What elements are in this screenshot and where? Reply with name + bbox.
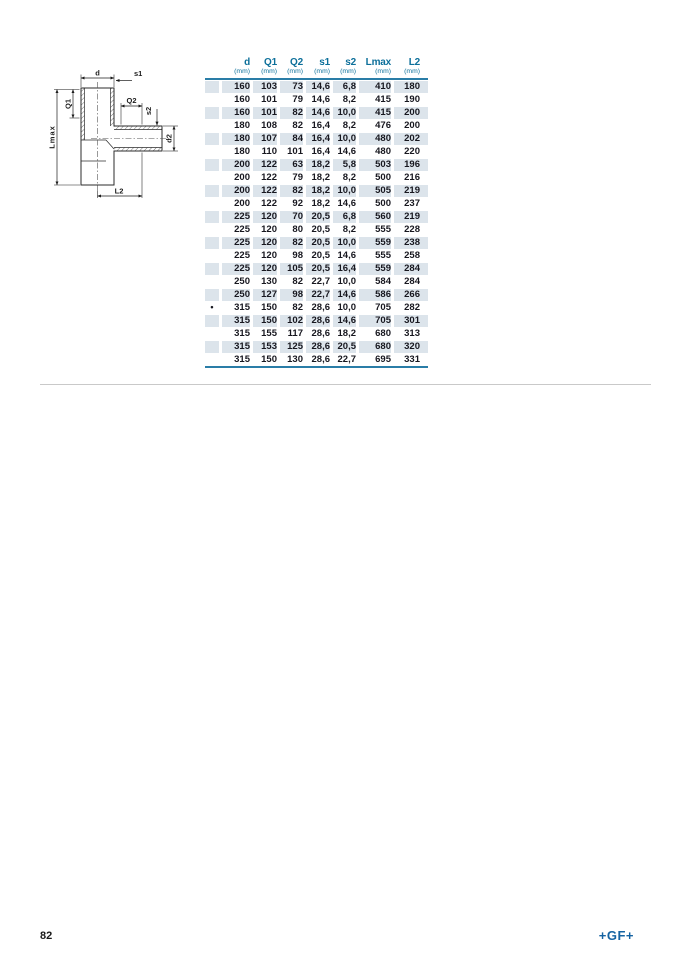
table-cell: 180 bbox=[222, 133, 250, 145]
table-cell: 238 bbox=[394, 237, 428, 249]
table-row: 2001226318,25,8503196 bbox=[205, 158, 428, 171]
table-cell: 284 bbox=[394, 263, 428, 275]
table-cell: 180 bbox=[222, 146, 250, 158]
table-cell: 153 bbox=[253, 341, 277, 353]
dim-label-q2: Q2 bbox=[126, 96, 136, 105]
table-cell: 82 bbox=[280, 107, 303, 119]
dim-label-s1: s1 bbox=[134, 69, 142, 78]
column-header-label: L2 bbox=[394, 58, 420, 68]
table-cell: 225 bbox=[222, 211, 250, 223]
table-cell: 120 bbox=[253, 263, 277, 275]
table-cell: 315 bbox=[222, 341, 250, 353]
table-cell: 92 bbox=[280, 198, 303, 210]
table-cell: 20,5 bbox=[306, 211, 330, 223]
table-cell: 10,0 bbox=[333, 302, 356, 314]
table-cell: 14,6 bbox=[333, 250, 356, 262]
table-cell: 196 bbox=[394, 159, 428, 171]
table-cell: 125 bbox=[280, 341, 303, 353]
table-cell: 225 bbox=[222, 263, 250, 275]
table-cell: 559 bbox=[359, 237, 391, 249]
column-header-label: Lmax bbox=[359, 58, 391, 68]
table-cell: 216 bbox=[394, 172, 428, 184]
table-cell: 505 bbox=[359, 185, 391, 197]
table-cell: 331 bbox=[394, 354, 428, 366]
table-cell: 320 bbox=[394, 341, 428, 353]
table-cell: 200 bbox=[222, 198, 250, 210]
table-cell: 14,6 bbox=[306, 94, 330, 106]
table-cell: 284 bbox=[394, 276, 428, 288]
table-cell: 503 bbox=[359, 159, 391, 171]
dim-label-q1: Q1 bbox=[64, 99, 73, 109]
row-footnote-marker bbox=[205, 328, 219, 340]
table-row: 2501308222,710,0584284 bbox=[205, 275, 428, 288]
column-header-unit: (mm) bbox=[253, 69, 277, 78]
column-header: s1(mm) bbox=[306, 58, 330, 78]
table-cell: 315 bbox=[222, 328, 250, 340]
table-cell: 82 bbox=[280, 120, 303, 132]
table-cell: 22,7 bbox=[306, 276, 330, 288]
column-header-label: Q2 bbox=[280, 58, 303, 68]
table-cell: 14,6 bbox=[333, 146, 356, 158]
tee-fitting-outline bbox=[81, 88, 162, 185]
table-cell: 10,0 bbox=[333, 237, 356, 249]
table-row: 2001228218,210,0505219 bbox=[205, 184, 428, 197]
table-cell: 160 bbox=[222, 107, 250, 119]
row-footnote-marker bbox=[205, 224, 219, 236]
table-row: 2251207020,56,8560219 bbox=[205, 210, 428, 223]
table-cell: 14,6 bbox=[306, 81, 330, 93]
table-cell: 120 bbox=[253, 211, 277, 223]
table-row: 2001229218,214,6500237 bbox=[205, 197, 428, 210]
table-cell: 80 bbox=[280, 224, 303, 236]
table-cell: 130 bbox=[253, 276, 277, 288]
table-cell: 84 bbox=[280, 133, 303, 145]
table-cell: 584 bbox=[359, 276, 391, 288]
table-cell: 220 bbox=[394, 146, 428, 158]
table-cell: 8,2 bbox=[333, 120, 356, 132]
table-cell: 160 bbox=[222, 81, 250, 93]
table-cell: 8,2 bbox=[333, 172, 356, 184]
column-header: Lmax(mm) bbox=[359, 58, 391, 78]
table-cell: 82 bbox=[280, 185, 303, 197]
table-cell: 200 bbox=[222, 172, 250, 184]
table-cell: 225 bbox=[222, 237, 250, 249]
column-header-unit: (mm) bbox=[333, 69, 356, 78]
table-cell: 559 bbox=[359, 263, 391, 275]
table-cell: 476 bbox=[359, 120, 391, 132]
table-cell: 219 bbox=[394, 211, 428, 223]
table-cell: 28,6 bbox=[306, 328, 330, 340]
table-cell: 28,6 bbox=[306, 354, 330, 366]
row-footnote-marker: • bbox=[205, 302, 219, 314]
table-body: 1601037314,66,84101801601017914,68,24151… bbox=[205, 80, 428, 368]
table-cell: 102 bbox=[280, 315, 303, 327]
table-cell: 315 bbox=[222, 315, 250, 327]
table-cell: 500 bbox=[359, 198, 391, 210]
table-cell: 20,5 bbox=[306, 237, 330, 249]
table-cell: 150 bbox=[253, 315, 277, 327]
table-cell: 225 bbox=[222, 224, 250, 236]
row-footnote-marker bbox=[205, 185, 219, 197]
table-cell: 315 bbox=[222, 354, 250, 366]
row-footnote-marker bbox=[205, 81, 219, 93]
table-cell: 10,0 bbox=[333, 107, 356, 119]
table-cell: 110 bbox=[253, 146, 277, 158]
row-footnote-marker bbox=[205, 315, 219, 327]
table-cell: 22,7 bbox=[333, 354, 356, 366]
table-cell: 18,2 bbox=[333, 328, 356, 340]
row-footnote-marker bbox=[205, 120, 219, 132]
column-header-unit: (mm) bbox=[222, 69, 250, 78]
table-cell: 586 bbox=[359, 289, 391, 301]
table-cell: 5,8 bbox=[333, 159, 356, 171]
table-cell: 10,0 bbox=[333, 185, 356, 197]
column-header-unit: (mm) bbox=[306, 69, 330, 78]
table-cell: 108 bbox=[253, 120, 277, 132]
table-cell: 415 bbox=[359, 107, 391, 119]
table-cell: 14,6 bbox=[333, 289, 356, 301]
table-cell: 282 bbox=[394, 302, 428, 314]
table-cell: 63 bbox=[280, 159, 303, 171]
table-cell: 705 bbox=[359, 302, 391, 314]
column-header-label: Q1 bbox=[253, 58, 277, 68]
table-cell: 16,4 bbox=[306, 133, 330, 145]
table-cell: 155 bbox=[253, 328, 277, 340]
table-cell: 705 bbox=[359, 315, 391, 327]
table-cell: 28,6 bbox=[306, 302, 330, 314]
table-cell: 101 bbox=[253, 94, 277, 106]
table-cell: 200 bbox=[222, 159, 250, 171]
column-header-unit: (mm) bbox=[359, 69, 391, 78]
table-cell: 70 bbox=[280, 211, 303, 223]
table-cell: 107 bbox=[253, 133, 277, 145]
table-cell: 313 bbox=[394, 328, 428, 340]
table-cell: 202 bbox=[394, 133, 428, 145]
column-header: L2(mm) bbox=[394, 58, 428, 78]
table-cell: 6,8 bbox=[333, 211, 356, 223]
table-cell: 480 bbox=[359, 133, 391, 145]
table-cell: 190 bbox=[394, 94, 428, 106]
table-cell: 18,2 bbox=[306, 159, 330, 171]
column-header-label: s1 bbox=[306, 58, 330, 68]
dimension-lines bbox=[57, 78, 174, 196]
table-cell: 20,5 bbox=[306, 224, 330, 236]
table-cell: 14,6 bbox=[333, 198, 356, 210]
table-cell: 180 bbox=[394, 81, 428, 93]
table-cell: 120 bbox=[253, 237, 277, 249]
page-number: 82 bbox=[40, 930, 52, 942]
table-cell: 79 bbox=[280, 94, 303, 106]
table-cell: 103 bbox=[253, 81, 277, 93]
dimension-table: d(mm)Q1(mm)Q2(mm)s1(mm)s2(mm)Lmax(mm)L2(… bbox=[205, 53, 428, 368]
table-cell: 555 bbox=[359, 250, 391, 262]
table-cell: 22,7 bbox=[306, 289, 330, 301]
table-row: 1801088216,48,2476200 bbox=[205, 119, 428, 132]
row-footnote-marker bbox=[205, 289, 219, 301]
table-cell: 73 bbox=[280, 81, 303, 93]
table-cell: 98 bbox=[280, 250, 303, 262]
page-divider-line bbox=[40, 384, 651, 385]
table-cell: 16,4 bbox=[306, 146, 330, 158]
row-footnote-marker bbox=[205, 263, 219, 275]
table-cell: 20,5 bbox=[333, 341, 356, 353]
dim-label-d: d bbox=[95, 69, 100, 78]
table-cell: 18,2 bbox=[306, 198, 330, 210]
table-cell: 82 bbox=[280, 237, 303, 249]
table-cell: 120 bbox=[253, 224, 277, 236]
table-cell: 101 bbox=[253, 107, 277, 119]
table-cell: 200 bbox=[394, 107, 428, 119]
row-footnote-marker bbox=[205, 354, 219, 366]
table-cell: 415 bbox=[359, 94, 391, 106]
table-row: 2251208220,510,0559238 bbox=[205, 236, 428, 249]
table-cell: 14,6 bbox=[306, 107, 330, 119]
table-cell: 10,0 bbox=[333, 133, 356, 145]
table-cell: 225 bbox=[222, 250, 250, 262]
table-cell: 120 bbox=[253, 250, 277, 262]
table-row: 22512010520,516,4559284 bbox=[205, 262, 428, 275]
column-header: s2(mm) bbox=[333, 58, 356, 78]
table-cell: 127 bbox=[253, 289, 277, 301]
table-cell: 117 bbox=[280, 328, 303, 340]
table-cell: 500 bbox=[359, 172, 391, 184]
table-row: 2001227918,28,2500216 bbox=[205, 171, 428, 184]
extension-lines bbox=[54, 75, 178, 199]
table-cell: 28,6 bbox=[306, 315, 330, 327]
column-header-unit: (mm) bbox=[394, 69, 420, 78]
technical-drawing: d s1 Q1 Lmax Q2 s2 d2 L2 bbox=[44, 56, 194, 206]
table-cell: 14,6 bbox=[333, 315, 356, 327]
table-row: 31515312528,620,5680320 bbox=[205, 340, 428, 353]
table-cell: 315 bbox=[222, 302, 250, 314]
table-cell: 82 bbox=[280, 276, 303, 288]
table-row: 2251208020,58,2555228 bbox=[205, 223, 428, 236]
table-cell: 695 bbox=[359, 354, 391, 366]
table-cell: 250 bbox=[222, 276, 250, 288]
table-cell: 301 bbox=[394, 315, 428, 327]
column-header-label: d bbox=[222, 58, 250, 68]
table-cell: 8,2 bbox=[333, 224, 356, 236]
table-cell: 237 bbox=[394, 198, 428, 210]
row-footnote-marker bbox=[205, 107, 219, 119]
column-header: d(mm) bbox=[222, 58, 250, 78]
table-row: 31515010228,614,6705301 bbox=[205, 314, 428, 327]
row-footnote-marker bbox=[205, 341, 219, 353]
table-cell: 410 bbox=[359, 81, 391, 93]
dim-label-lmax: Lmax bbox=[48, 125, 57, 149]
row-footnote-marker bbox=[205, 94, 219, 106]
table-cell: 219 bbox=[394, 185, 428, 197]
table-cell: 680 bbox=[359, 328, 391, 340]
column-header: Q2(mm) bbox=[280, 58, 303, 78]
row-footnote-marker bbox=[205, 250, 219, 262]
table-cell: 18,2 bbox=[306, 172, 330, 184]
table-cell: 82 bbox=[280, 302, 303, 314]
table-cell: 105 bbox=[280, 263, 303, 275]
row-footnote-marker bbox=[205, 172, 219, 184]
table-row: 2251209820,514,6555258 bbox=[205, 249, 428, 262]
table-cell: 122 bbox=[253, 159, 277, 171]
table-cell: 150 bbox=[253, 354, 277, 366]
row-footnote-marker bbox=[205, 159, 219, 171]
table-cell: 680 bbox=[359, 341, 391, 353]
table-cell: 160 bbox=[222, 94, 250, 106]
table-cell: 6,8 bbox=[333, 81, 356, 93]
table-cell: 200 bbox=[222, 185, 250, 197]
row-footnote-marker bbox=[205, 146, 219, 158]
table-row: 31515511728,618,2680313 bbox=[205, 327, 428, 340]
table-cell: 200 bbox=[394, 120, 428, 132]
row-footnote-marker bbox=[205, 198, 219, 210]
table-cell: 560 bbox=[359, 211, 391, 223]
table-row: 1801078416,410,0480202 bbox=[205, 132, 428, 145]
table-cell: 16,4 bbox=[306, 120, 330, 132]
column-header-label: s2 bbox=[333, 58, 356, 68]
table-row: 2501279822,714,6586266 bbox=[205, 288, 428, 301]
row-footnote-marker bbox=[205, 211, 219, 223]
table-row: 1601018214,610,0415200 bbox=[205, 106, 428, 119]
table-cell: 150 bbox=[253, 302, 277, 314]
dim-label-l2: L2 bbox=[115, 187, 124, 196]
row-footnote-marker bbox=[205, 237, 219, 249]
table-row: 1601037314,66,8410180 bbox=[205, 80, 428, 93]
column-header-unit: (mm) bbox=[280, 69, 303, 78]
table-cell: 79 bbox=[280, 172, 303, 184]
table-cell: 258 bbox=[394, 250, 428, 262]
catalog-page: d s1 Q1 Lmax Q2 s2 d2 L2 d(mm)Q1(mm)Q2(m… bbox=[0, 0, 691, 972]
table-row: 18011010116,414,6480220 bbox=[205, 145, 428, 158]
table-row: •3151508228,610,0705282 bbox=[205, 301, 428, 314]
row-footnote-marker bbox=[205, 276, 219, 288]
table-cell: 8,2 bbox=[333, 94, 356, 106]
table-cell: 250 bbox=[222, 289, 250, 301]
table-cell: 266 bbox=[394, 289, 428, 301]
dim-label-s2: s2 bbox=[144, 107, 153, 115]
table-cell: 16,4 bbox=[333, 263, 356, 275]
pipe-wall-hatching bbox=[81, 88, 162, 151]
table-cell: 228 bbox=[394, 224, 428, 236]
column-header: Q1(mm) bbox=[253, 58, 277, 78]
table-row: 31515013028,622,7695331 bbox=[205, 353, 428, 366]
table-cell: 480 bbox=[359, 146, 391, 158]
table-cell: 130 bbox=[280, 354, 303, 366]
row-footnote-marker bbox=[205, 133, 219, 145]
table-row: 1601017914,68,2415190 bbox=[205, 93, 428, 106]
table-cell: 18,2 bbox=[306, 185, 330, 197]
table-header-row: d(mm)Q1(mm)Q2(mm)s1(mm)s2(mm)Lmax(mm)L2(… bbox=[205, 53, 428, 80]
table-cell: 10,0 bbox=[333, 276, 356, 288]
table-cell: 180 bbox=[222, 120, 250, 132]
table-cell: 101 bbox=[280, 146, 303, 158]
gf-logo: +GF+ bbox=[599, 928, 634, 943]
table-cell: 28,6 bbox=[306, 341, 330, 353]
dim-label-d2: d2 bbox=[165, 134, 174, 143]
table-cell: 555 bbox=[359, 224, 391, 236]
table-cell: 122 bbox=[253, 198, 277, 210]
table-cell: 98 bbox=[280, 289, 303, 301]
table-cell: 20,5 bbox=[306, 263, 330, 275]
table-cell: 122 bbox=[253, 172, 277, 184]
table-cell: 20,5 bbox=[306, 250, 330, 262]
table-cell: 122 bbox=[253, 185, 277, 197]
